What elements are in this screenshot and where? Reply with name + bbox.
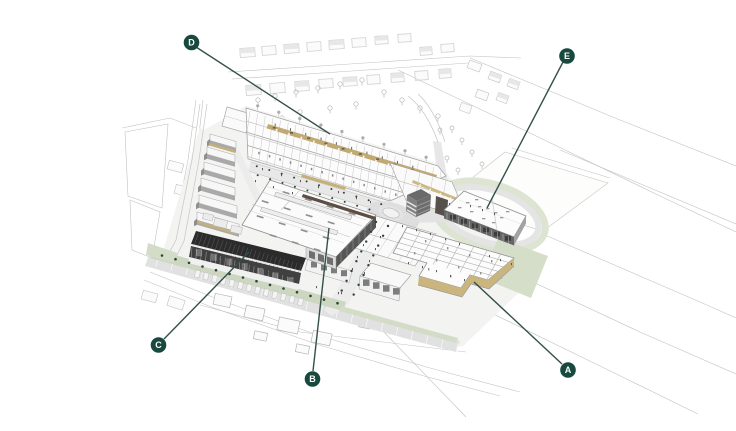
svg-text:D: D: [188, 38, 195, 48]
svg-text:E: E: [564, 51, 570, 61]
svg-text:C: C: [155, 340, 162, 350]
svg-text:A: A: [565, 365, 572, 375]
svg-text:B: B: [309, 374, 316, 384]
